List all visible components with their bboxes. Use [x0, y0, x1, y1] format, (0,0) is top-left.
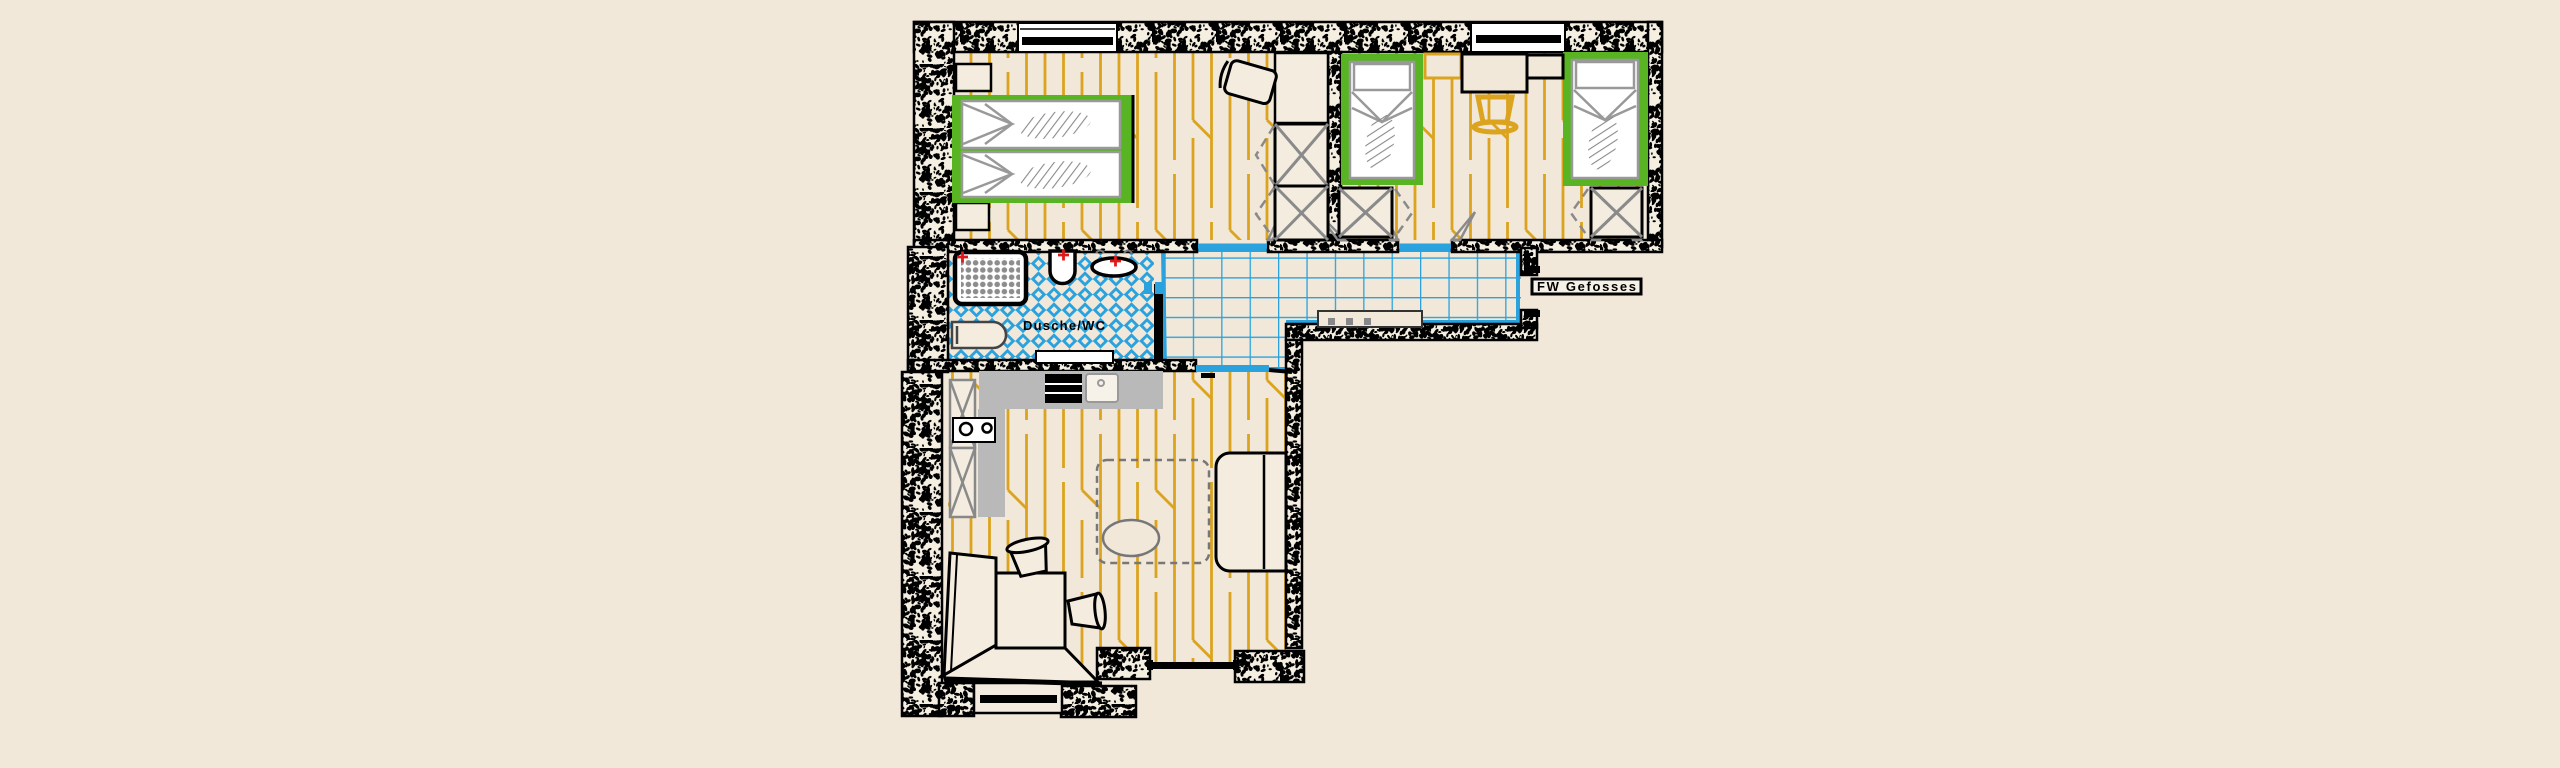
svg-text:FW Gefosses: FW Gefosses	[1537, 279, 1636, 294]
svg-text:Dusche/WC: Dusche/WC	[1023, 318, 1106, 333]
